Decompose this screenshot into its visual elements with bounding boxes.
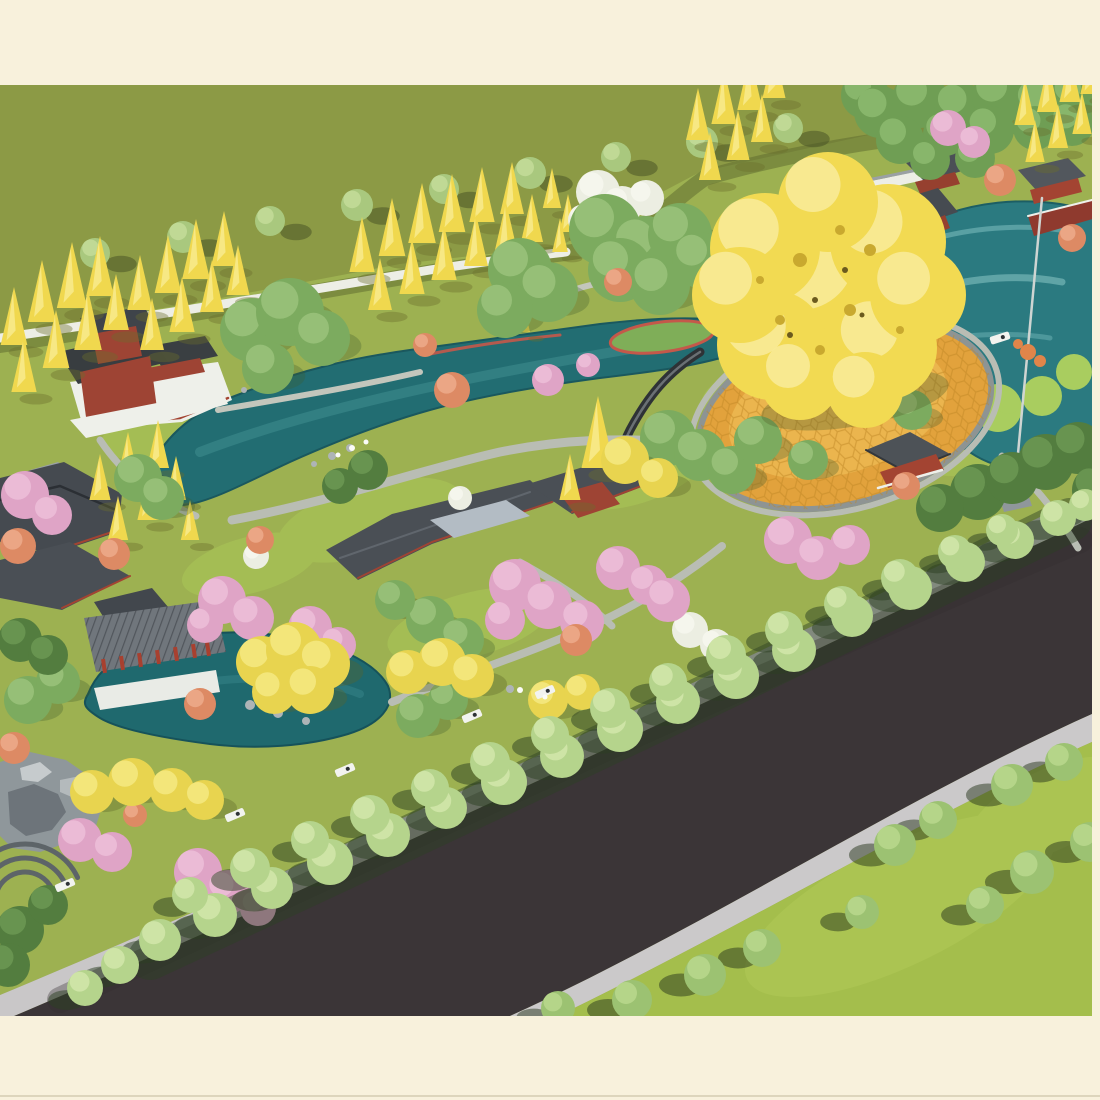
scanned-page: Scanned aerial bird's-eye rendering of a…	[0, 0, 1100, 1100]
rendering-content-layer	[0, 48, 1100, 1033]
scene	[0, 0, 1100, 1100]
park-aerial-rendering: Scanned aerial bird's-eye rendering of a…	[0, 0, 1100, 1100]
